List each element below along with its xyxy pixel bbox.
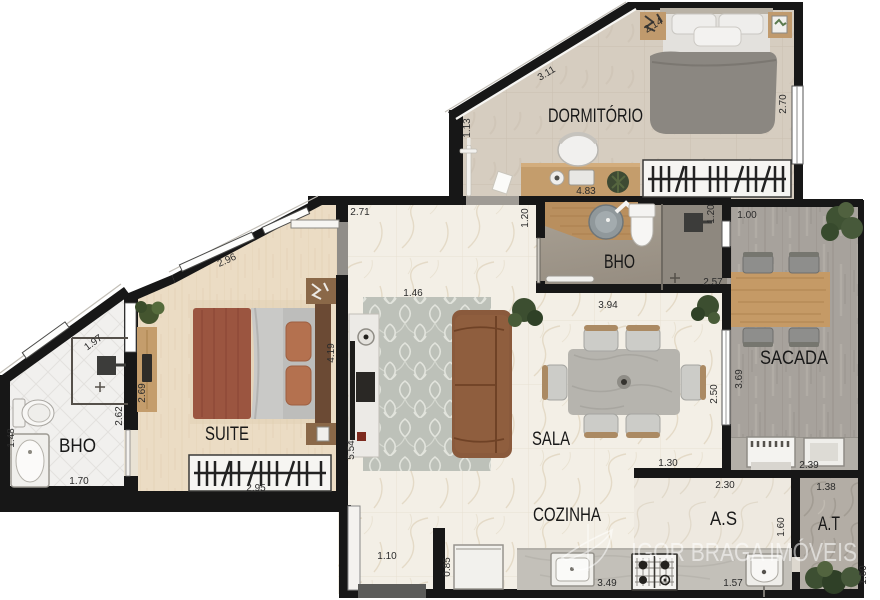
svg-text:2.62: 2.62 [114,406,125,426]
svg-text:3.69: 3.69 [734,369,745,389]
svg-text:COZINHA: COZINHA [533,504,601,526]
svg-text:SALA: SALA [532,428,570,450]
svg-text:1.60: 1.60 [776,517,787,537]
svg-text:4.83: 4.83 [576,186,596,197]
svg-text:BHO: BHO [604,251,635,273]
svg-text:5.54: 5.54 [346,440,357,460]
svg-text:IGOR BRAGA IMÓVEIS: IGOR BRAGA IMÓVEIS [631,537,857,567]
svg-text:1.10: 1.10 [377,551,397,562]
svg-text:2.95: 2.95 [246,483,266,494]
svg-text:BHO: BHO [59,435,96,457]
svg-text:1.13: 1.13 [462,118,473,138]
svg-text:1.57: 1.57 [723,578,743,589]
svg-text:2.50: 2.50 [709,384,720,404]
svg-text:A.S: A.S [710,508,737,530]
svg-text:4.19: 4.19 [326,343,337,363]
svg-text:0.85: 0.85 [442,557,453,577]
svg-text:2.39: 2.39 [799,460,819,471]
svg-text:2.69: 2.69 [137,383,148,403]
svg-text:SUITE: SUITE [205,423,249,445]
svg-text:SACADA: SACADA [760,347,828,369]
svg-text:3.94: 3.94 [598,300,618,311]
svg-text:2.71: 2.71 [350,207,370,218]
svg-text:1.30: 1.30 [658,458,678,469]
svg-text:1.20: 1.20 [520,208,531,228]
svg-text:DORMITÓRIO: DORMITÓRIO [548,104,643,127]
svg-text:1.00: 1.00 [737,210,757,221]
svg-text:2.30: 2.30 [715,480,735,491]
svg-text:1.20: 1.20 [706,204,717,224]
svg-text:2.57: 2.57 [703,277,723,288]
svg-text:1.48: 1.48 [6,428,17,448]
svg-text:3.49: 3.49 [597,578,617,589]
svg-text:1.46: 1.46 [403,288,423,299]
svg-text:1.70: 1.70 [69,476,89,487]
svg-text:2.70: 2.70 [778,94,789,114]
svg-text:1.60: 1.60 [858,565,869,585]
svg-text:1.38: 1.38 [816,482,836,493]
svg-text:A.T: A.T [818,513,840,535]
